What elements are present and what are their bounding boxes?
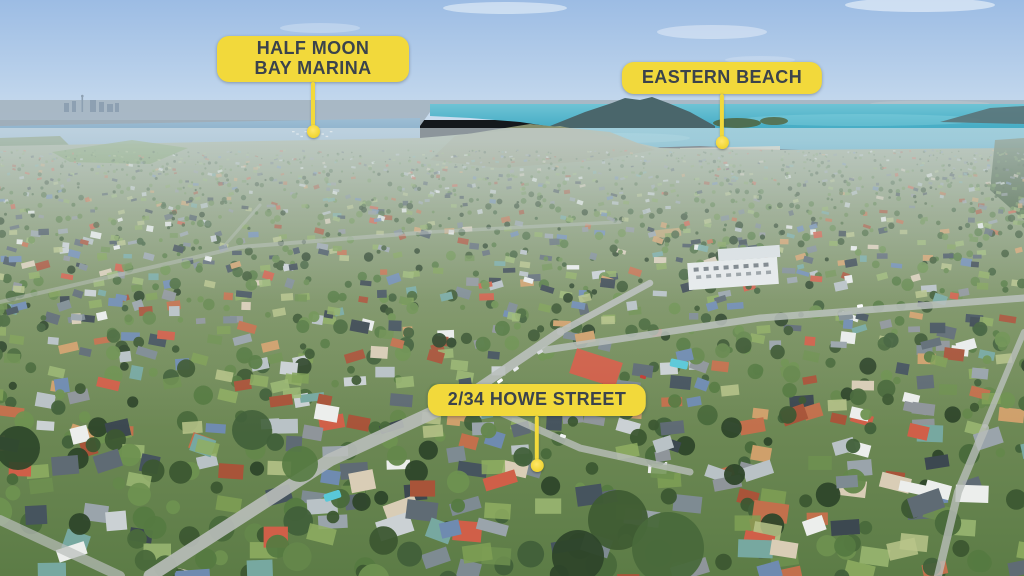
callout-howe-street: 2/34 HOWE STREET: [428, 384, 646, 472]
label-half-moon-bay-marina: HALF MOON BAY MARINA: [217, 36, 409, 82]
label-eastern-beach: EASTERN BEACH: [622, 62, 822, 94]
aerial-scene: [0, 0, 1024, 576]
location-marker-icon: [531, 459, 544, 472]
pointer-line: [535, 416, 539, 460]
location-marker-icon: [716, 136, 729, 149]
pointer-line: [311, 82, 315, 126]
callout-half-moon-bay-marina: HALF MOON BAY MARINA: [217, 36, 409, 138]
pointer-line: [720, 94, 724, 137]
callout-eastern-beach: EASTERN BEACH: [622, 62, 822, 149]
location-marker-icon: [307, 125, 320, 138]
aerial-photo: HALF MOON BAY MARINA EASTERN BEACH 2/34 …: [0, 0, 1024, 576]
sky-tower-icon: [82, 96, 84, 112]
label-howe-street: 2/34 HOWE STREET: [428, 384, 646, 416]
